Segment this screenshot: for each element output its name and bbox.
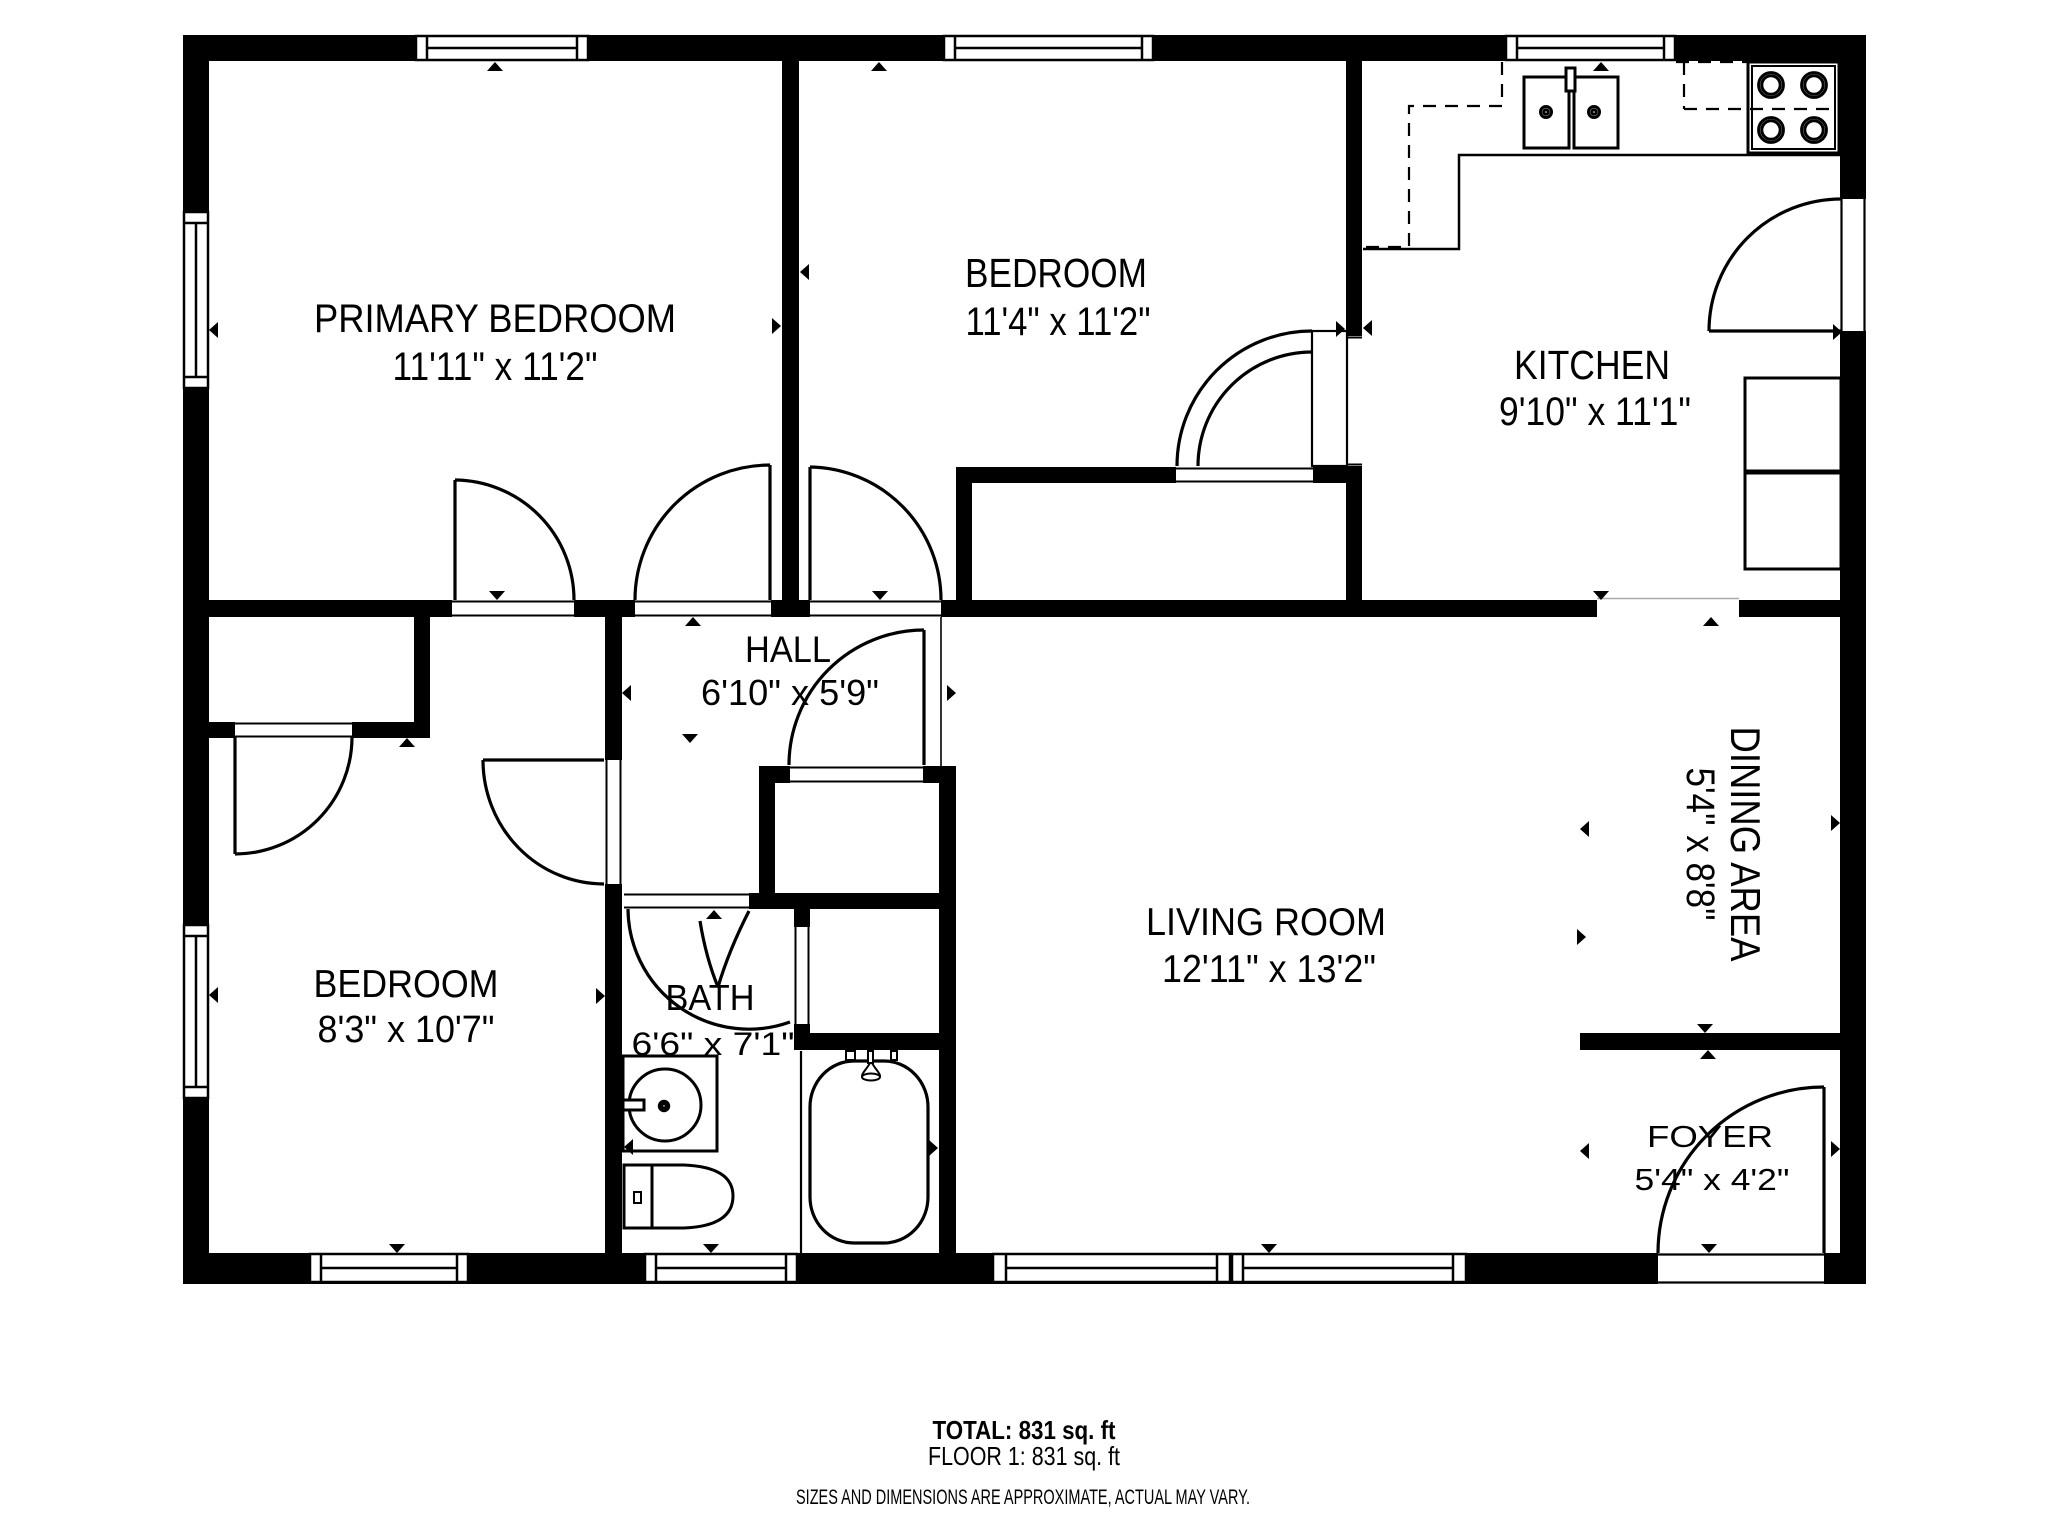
svg-text:BATH: BATH bbox=[666, 977, 755, 1018]
svg-text:BEDROOM: BEDROOM bbox=[314, 963, 499, 1006]
svg-text:12'11" x 13'2": 12'11" x 13'2" bbox=[1162, 948, 1376, 991]
svg-text:PRIMARY BEDROOM: PRIMARY BEDROOM bbox=[314, 297, 676, 341]
svg-text:BEDROOM: BEDROOM bbox=[965, 250, 1147, 296]
svg-text:FLOOR 1: 831 sq. ft: FLOOR 1: 831 sq. ft bbox=[928, 1441, 1121, 1471]
svg-text:HALL: HALL bbox=[745, 629, 831, 670]
svg-text:FOYER: FOYER bbox=[1647, 1119, 1773, 1154]
svg-text:SIZES AND DIMENSIONS ARE APPRO: SIZES AND DIMENSIONS ARE APPROXIMATE, AC… bbox=[796, 1486, 1250, 1509]
svg-text:11'11" x 11'2": 11'11" x 11'2" bbox=[393, 345, 598, 389]
svg-text:9'10" x 11'1": 9'10" x 11'1" bbox=[1499, 390, 1691, 434]
svg-text:KITCHEN: KITCHEN bbox=[1514, 342, 1670, 388]
svg-text:6'10" x 5'9": 6'10" x 5'9" bbox=[701, 672, 879, 713]
svg-text:5'4" x 4'2": 5'4" x 4'2" bbox=[1635, 1162, 1790, 1197]
svg-text:5'4" x 8'8": 5'4" x 8'8" bbox=[1678, 768, 1722, 921]
svg-text:11'4" x 11'2": 11'4" x 11'2" bbox=[966, 300, 1151, 344]
svg-text:DINING AREA: DINING AREA bbox=[1722, 727, 1769, 962]
svg-text:LIVING ROOM: LIVING ROOM bbox=[1146, 901, 1386, 944]
svg-text:6'6" x 7'1": 6'6" x 7'1" bbox=[632, 1026, 795, 1062]
svg-text:8'3" x 10'7": 8'3" x 10'7" bbox=[318, 1009, 495, 1051]
